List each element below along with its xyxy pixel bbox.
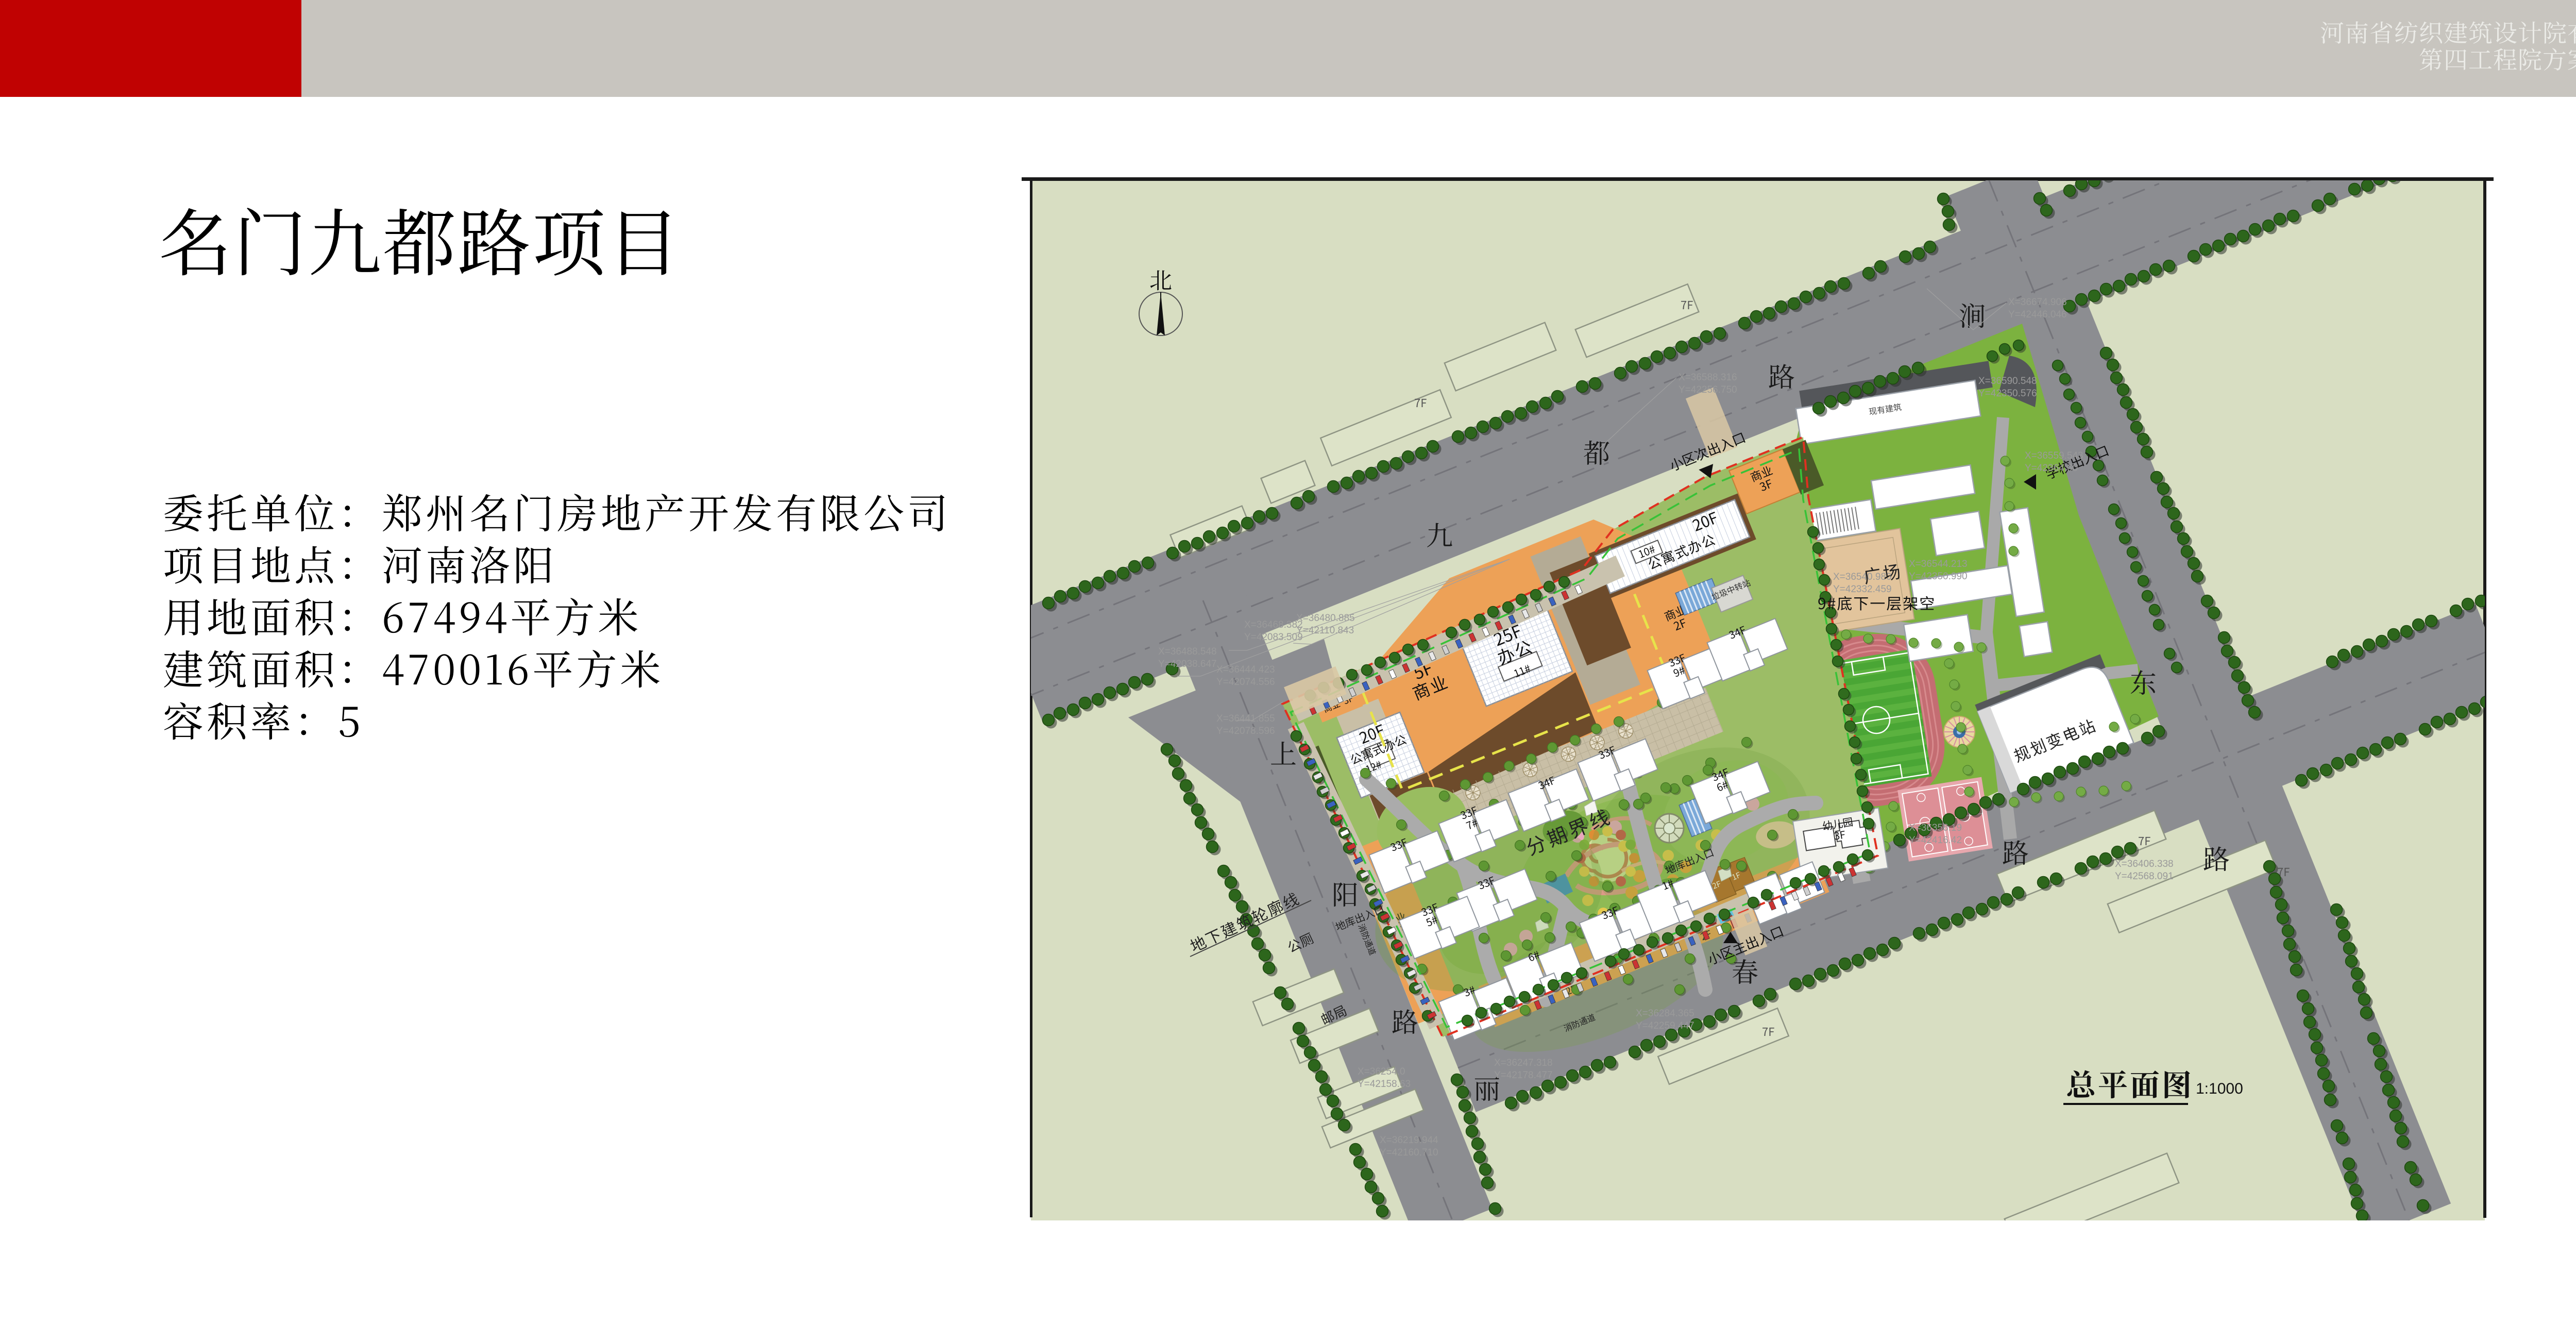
svg-text:1:1000: 1:1000 — [2196, 1080, 2243, 1097]
svg-text:Y=42110.843: Y=42110.843 — [1296, 625, 1354, 636]
svg-text:Y=42178.477: Y=42178.477 — [1494, 1070, 1553, 1081]
svg-text:X=36559.543: X=36559.543 — [2025, 450, 2083, 461]
svg-text:X=36444.423: X=36444.423 — [1216, 664, 1275, 675]
svg-text:X=36254.0: X=36254.0 — [1358, 1066, 1405, 1077]
svg-text:Y=42446.046: Y=42446.046 — [2008, 309, 2067, 320]
svg-text:Y=42416.42: Y=42416.42 — [1909, 835, 1962, 846]
svg-text:X=36468.382: X=36468.382 — [1244, 619, 1303, 630]
svg-text:X=36544.213: X=36544.213 — [1909, 559, 1968, 569]
svg-text:Y=42256.750: Y=42256.750 — [1679, 384, 1737, 395]
svg-text:Y=42332.459: Y=42332.459 — [1833, 584, 1892, 595]
svg-text:X=36540.980: X=36540.980 — [1833, 572, 1892, 582]
svg-text:X=36488.548: X=36488.548 — [1158, 646, 1217, 657]
svg-text:X=36480.885: X=36480.885 — [1296, 613, 1355, 624]
svg-text:Y=42160.710: Y=42160.710 — [1380, 1147, 1438, 1158]
svg-text:Y=42158.63: Y=42158.63 — [1358, 1079, 1411, 1090]
svg-text:X=36588.316: X=36588.316 — [1679, 372, 1737, 383]
svg-text:X=36356.19: X=36356.19 — [1909, 823, 1962, 833]
svg-text:Y=42350.576: Y=42350.576 — [1978, 388, 2037, 399]
svg-text:Y=42074.556: Y=42074.556 — [1216, 677, 1275, 688]
svg-text:X=36219.944: X=36219.944 — [1380, 1135, 1438, 1146]
svg-text:X=36284.365: X=36284.365 — [1636, 1008, 1694, 1019]
svg-text:X=36247.318: X=36247.318 — [1494, 1058, 1553, 1068]
svg-text:X=36406.338: X=36406.338 — [2115, 859, 2174, 869]
svg-text:Y=42350.990: Y=42350.990 — [1909, 571, 1968, 582]
svg-text:Y=42078.596: Y=42078.596 — [1216, 726, 1275, 736]
svg-text:X=36441.855: X=36441.855 — [1216, 713, 1275, 724]
svg-text:X=36674.906: X=36674.906 — [2008, 297, 2067, 308]
svg-text:Y=42038.647: Y=42038.647 — [1158, 659, 1217, 669]
svg-text:X=36590.548: X=36590.548 — [1978, 376, 2037, 387]
svg-text:Y=42259.447: Y=42259.447 — [1636, 1020, 1694, 1031]
svg-text:Y=42364.60: Y=42364.60 — [2025, 463, 2078, 474]
svg-text:Y=42568.091: Y=42568.091 — [2115, 871, 2174, 882]
